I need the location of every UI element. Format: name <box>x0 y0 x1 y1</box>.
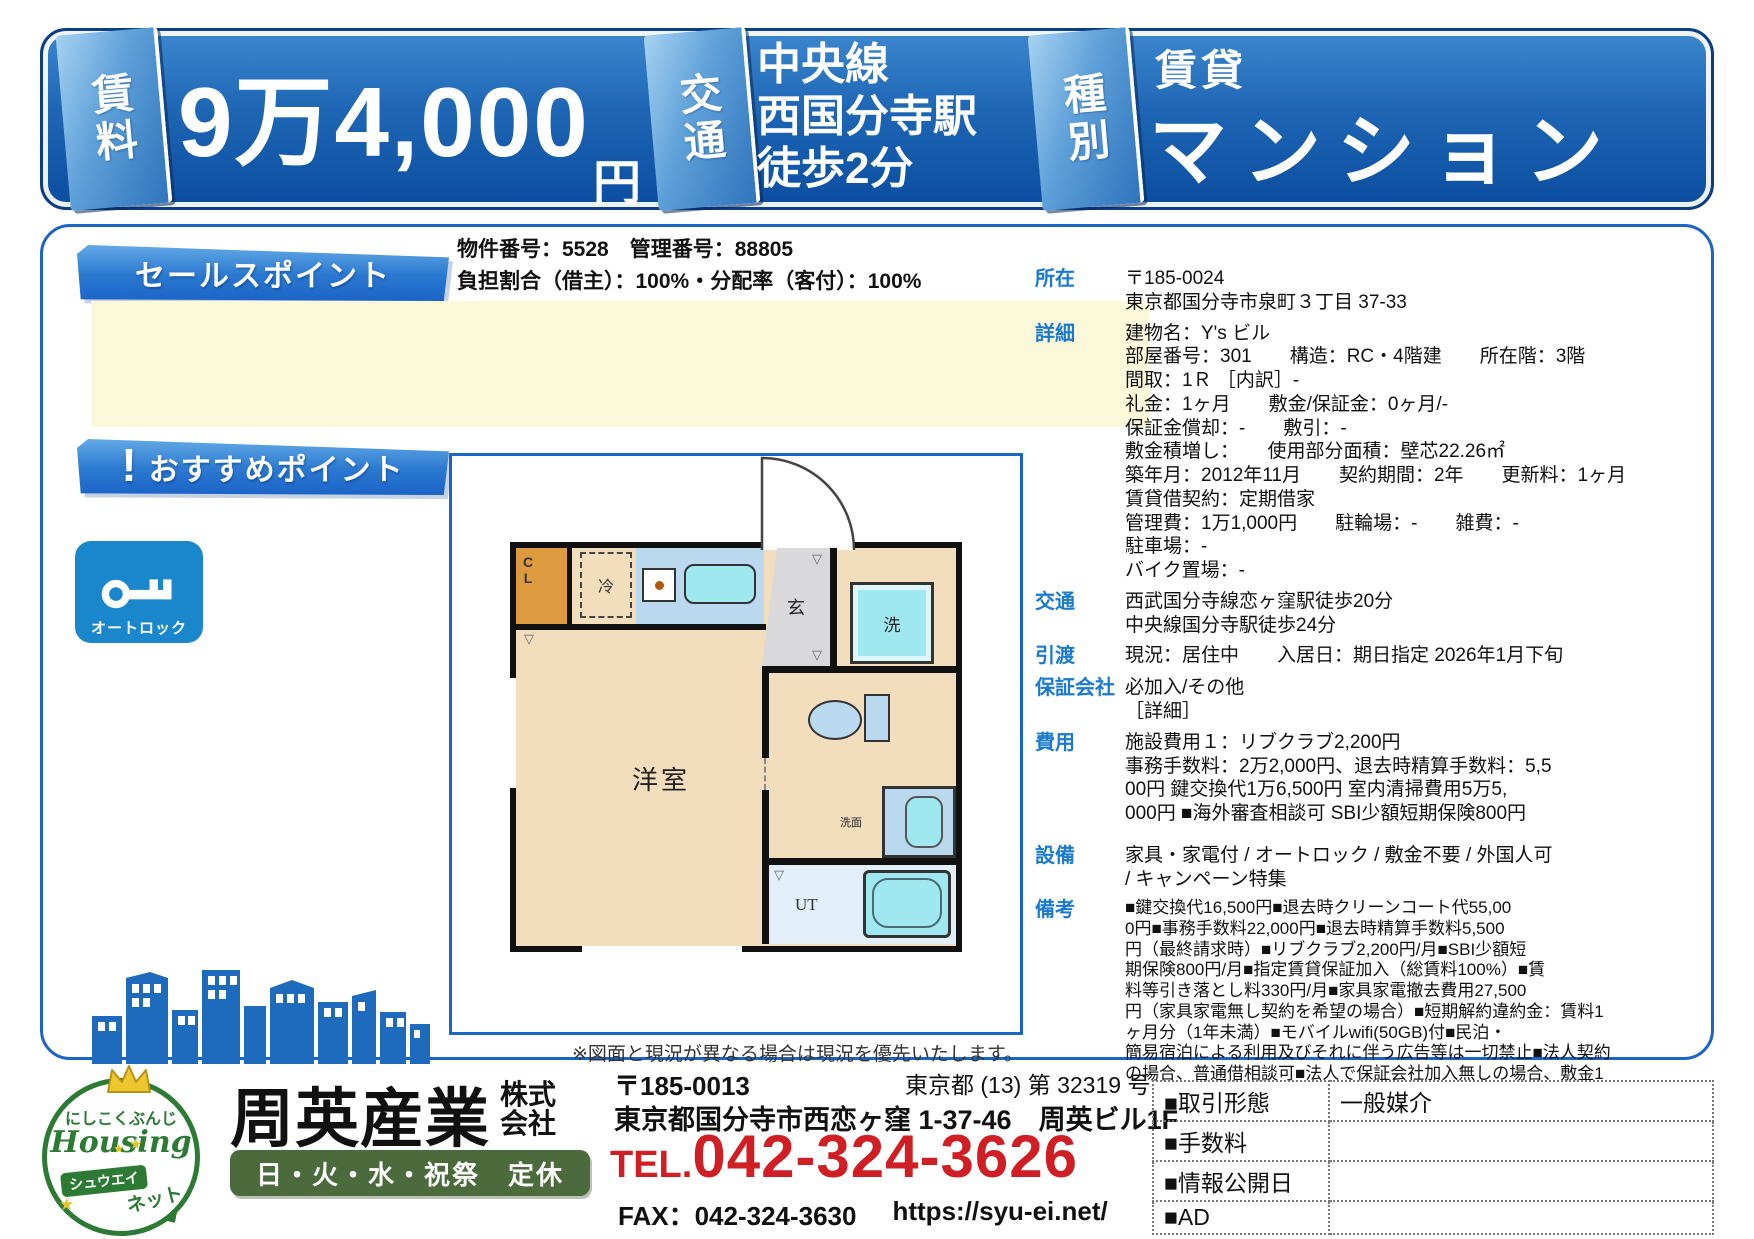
step-mark: ▽ <box>774 868 784 881</box>
step-mark: ▽ <box>812 552 822 565</box>
table-value <box>1329 1161 1713 1201</box>
sales-ribbon-wrap: セールスポイント <box>77 245 449 301</box>
fax-number: FAX：042-324-3630 <box>618 1196 856 1233</box>
table-label: ■手数料 <box>1153 1121 1329 1161</box>
rent-value: 9万4,000 <box>178 43 590 185</box>
table-row: ■手数料 <box>1153 1121 1713 1161</box>
section-label: 費用 <box>1035 731 1115 826</box>
main-room-label: 洋室 <box>632 760 690 797</box>
detail-section-location: 所在 〒185-0024 東京都国分寺市泉町３丁目 37-33 <box>1035 267 1711 315</box>
access-tab: 交通 <box>644 27 761 211</box>
table-value: 一般媒介 <box>1329 1081 1713 1121</box>
table-label: ■情報公開日 <box>1153 1161 1329 1201</box>
washbasin-icon <box>882 786 956 858</box>
recommend-ribbon-wrap: ! おすすめポイント <box>77 439 449 495</box>
section-value: ■鍵交換代16,500円■退去時クリーンコート代55,00 0円■事務手数料22… <box>1125 898 1611 1085</box>
table-label: ■取引形態 <box>1153 1081 1329 1121</box>
wall <box>516 624 766 630</box>
section-label: 保証会社 <box>1035 676 1115 724</box>
floorplan-fridge: 冷 <box>580 552 632 618</box>
section-label: 引渡 <box>1035 644 1115 669</box>
transaction-table: ■取引形態 一般媒介 ■手数料 ■情報公開日 ■AD <box>1152 1080 1714 1235</box>
table-value <box>1329 1121 1713 1161</box>
floorplan: CL 冷 玄 洗 洗面 <box>510 542 962 952</box>
star-icon: ★ <box>113 1141 125 1157</box>
sales-point-ribbon: セールスポイント <box>77 245 449 301</box>
key-icon <box>100 571 178 613</box>
stove-icon <box>642 568 676 602</box>
website-url: https://syu-ei.net/ <box>892 1196 1107 1233</box>
door-swing-icon <box>756 448 856 552</box>
floorplan-box: CL 冷 玄 洗 洗面 <box>449 453 1023 1035</box>
utility-label: UT <box>795 895 818 915</box>
window <box>582 946 742 952</box>
basin-bowl <box>905 796 943 848</box>
main-panel: セールスポイント 物件番号：5528 管理番号：88805 負担割合（借主）：1… <box>40 224 1714 1060</box>
company-suffix: 株式 会社 <box>500 1080 556 1139</box>
bathtub-icon <box>863 870 951 938</box>
section-label: 所在 <box>1035 267 1115 315</box>
section-value: 西武国分寺線恋ヶ窪駅徒歩20分 中央線国分寺駅徒歩24分 <box>1125 590 1393 638</box>
type-tab-label: 種別 <box>1050 70 1119 169</box>
rent-unit: 円 <box>593 143 641 213</box>
toilet-tank-icon <box>864 694 890 742</box>
fax-line: FAX：042-324-3630 https://syu-ei.net/ <box>618 1196 1108 1233</box>
detail-section-equipment: 設備 家具・家電付 / オートロック / 敷金不要 / 外国人可 / キャンペー… <box>1035 844 1711 892</box>
section-value: 現況：居住中 入居日：期日指定 2026年1月下旬 <box>1125 644 1563 669</box>
autolock-badge: オートロック <box>75 541 203 643</box>
type-tab: 種別 <box>1028 27 1145 211</box>
cityscape-icon <box>92 962 430 1064</box>
wall <box>762 666 956 673</box>
phone-line: TEL. 042-324-3626 <box>610 1122 1078 1191</box>
rent-tab: 賃料 <box>56 27 173 211</box>
bathtub-inner <box>872 878 942 928</box>
basin-label: 洗面 <box>840 814 862 830</box>
property-flyer: 賃料 9万4,000 円 交通 中央線 西国分寺駅 徒歩2分 種別 賃貸 マンシ… <box>0 0 1754 1239</box>
access-lines: 中央線 西国分寺駅 徒歩2分 <box>757 39 977 195</box>
section-label: 交通 <box>1035 590 1115 638</box>
floorplan-washer: 洗 <box>850 582 934 664</box>
floorplan-utility: UT <box>769 865 956 944</box>
detail-section-access: 交通 西武国分寺線恋ヶ窪駅徒歩20分 中央線国分寺駅徒歩24分 <box>1035 590 1711 638</box>
wall <box>762 666 769 758</box>
step-mark: ▽ <box>524 632 534 645</box>
autolock-label: オートロック <box>91 617 187 638</box>
section-label: 設備 <box>1035 844 1115 892</box>
floorplan-kitchen-counter <box>636 548 764 624</box>
floorplan-caption: ※図面と現況が異なる場合は現況を優先いたします。 <box>443 1039 1023 1066</box>
sales-point-box <box>91 301 1149 427</box>
detail-section-remarks: 備考 ■鍵交換代16,500円■退去時クリーンコート代55,00 0円■事務手数… <box>1035 898 1711 1085</box>
sink-icon <box>684 564 756 604</box>
company-logo: にしこくぶんじ Housing シュウエイ ネット ★ ★ ★ <box>42 1078 200 1236</box>
detail-section-guarantor: 保証会社 必加入/その他 ［詳細］ <box>1035 676 1711 724</box>
section-value: 必加入/その他 ［詳細］ <box>1125 676 1244 724</box>
recommend-point-label: おすすめポイント <box>149 445 405 489</box>
sliding-door <box>764 758 766 790</box>
detail-section-cost: 費用 施設費用１：リブクラブ2,200円 事務手数料：2万2,000円、退去時精… <box>1035 731 1711 826</box>
property-number-line: 物件番号：5528 管理番号：88805 <box>457 233 793 263</box>
closed-days-label: 日・火・水・祝祭 定休 <box>256 1155 564 1192</box>
section-value: 家具・家電付 / オートロック / 敷金不要 / 外国人可 / キャンペーン特集 <box>1125 844 1553 892</box>
step-mark: ▽ <box>812 648 822 661</box>
sales-point-label: セールスポイント <box>135 251 391 295</box>
ratio-line: 負担割合（借主）：100%・分配率（客付）：100% <box>457 265 921 295</box>
wall <box>769 858 956 865</box>
detail-section-detail: 詳細 建物名：Y's ビル 部屋番号：301 構造：RC・4階建 所在階：3階 … <box>1035 322 1711 583</box>
star-icon: ★ <box>129 1135 142 1153</box>
section-value: 〒185-0024 東京都国分寺市泉町３丁目 37-33 <box>1125 267 1407 315</box>
header-banner: 賃料 9万4,000 円 交通 中央線 西国分寺駅 徒歩2分 種別 賃貸 マンシ… <box>40 28 1714 210</box>
closed-days-bar: 日・火・水・祝祭 定休 <box>230 1150 590 1196</box>
table-row: ■取引形態 一般媒介 <box>1153 1081 1713 1121</box>
access-tab-label: 交通 <box>666 70 735 169</box>
wall <box>830 548 837 672</box>
tel-label: TEL. <box>610 1144 692 1187</box>
table-row: ■AD <box>1153 1201 1713 1234</box>
recommend-point-ribbon: ! おすすめポイント <box>77 439 449 495</box>
type-kind: マンション <box>1149 89 1619 201</box>
toilet-icon <box>808 700 862 740</box>
floorplan-closet: CL <box>516 548 572 624</box>
section-value: 建物名：Y's ビル 部屋番号：301 構造：RC・4階建 所在階：3階 間取：… <box>1125 322 1626 583</box>
table-value <box>1329 1201 1713 1234</box>
table-row: ■情報公開日 <box>1153 1161 1713 1201</box>
tel-number: 042-324-3626 <box>692 1122 1078 1191</box>
license-number: 東京都 (13) 第 32319 号 <box>905 1066 1150 1100</box>
window <box>510 678 516 788</box>
section-label: 備考 <box>1035 898 1115 1085</box>
wall <box>762 790 769 944</box>
detail-section-handover: 引渡 現況：居住中 入居日：期日指定 2026年1月下旬 <box>1035 644 1711 669</box>
section-label: 詳細 <box>1035 322 1115 583</box>
rent-tab-label: 賃料 <box>78 70 147 169</box>
exclamation-icon: ! <box>121 438 138 492</box>
table-label: ■AD <box>1153 1201 1329 1234</box>
company-name: 周英産業 <box>230 1068 490 1160</box>
section-value: 施設費用１：リブクラブ2,200円 事務手数料：2万2,000円、退去時精算手数… <box>1125 731 1552 826</box>
crown-icon <box>104 1062 154 1096</box>
star-icon: ★ <box>59 1195 74 1215</box>
details-column: 所在 〒185-0024 東京都国分寺市泉町３丁目 37-33 詳細 建物名：Y… <box>1035 267 1711 1092</box>
